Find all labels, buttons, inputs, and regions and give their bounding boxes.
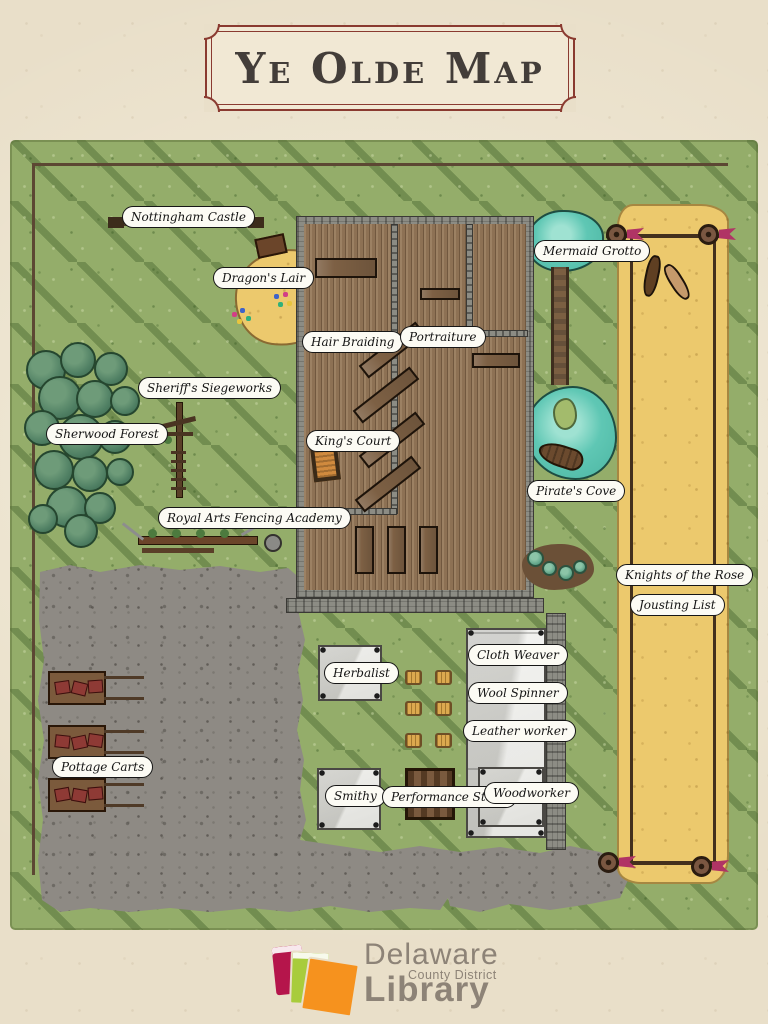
map-label-royal-arts-fencing-academy: Royal Arts Fencing Academy xyxy=(158,507,351,529)
tree-icon xyxy=(64,514,98,548)
map-label-nottingham-castle: Nottingham Castle xyxy=(122,206,255,228)
fence-line-top xyxy=(32,163,728,166)
table xyxy=(315,258,377,278)
gem-pile-icon xyxy=(232,308,258,328)
wheel-post-icon xyxy=(698,224,719,245)
map-label-pottage-carts: Pottage Carts xyxy=(52,756,153,778)
gem-pile-icon xyxy=(274,292,300,312)
table xyxy=(420,288,460,300)
map-label-wool-spinner: Wool Spinner xyxy=(468,682,568,704)
wheel-post-icon xyxy=(691,856,712,877)
pottage-cart-icon xyxy=(48,671,106,705)
hay-bale-icon xyxy=(405,670,422,685)
book-icon xyxy=(300,956,360,1017)
hay-bale-icon xyxy=(405,733,422,748)
tree-icon xyxy=(72,456,108,492)
event-map: Nottingham Castle Dragon's Lair Mermaid … xyxy=(10,140,758,930)
pottage-cart-icon xyxy=(48,725,106,759)
pottage-cart-icon xyxy=(48,778,106,812)
bush-icon xyxy=(542,561,557,576)
deck-wall xyxy=(466,224,473,336)
cove-island xyxy=(553,398,577,430)
table xyxy=(355,526,374,574)
logo-line-delaware: Delaware xyxy=(364,938,499,972)
bush-icon xyxy=(527,550,544,567)
map-label-hair-braiding: Hair Braiding xyxy=(302,331,403,353)
library-logo: Delaware County District Library xyxy=(266,938,499,1014)
map-label-mermaid-grotto: Mermaid Grotto xyxy=(534,240,650,262)
title-banner: Ye Olde Map xyxy=(205,25,575,111)
bush-icon xyxy=(558,565,574,581)
tree-icon xyxy=(76,380,114,418)
map-label-sheriffs-siegeworks: Sheriff's Siegeworks xyxy=(138,377,281,399)
tree-icon xyxy=(28,504,58,534)
tree-icon xyxy=(60,342,96,378)
map-label-knights-of-the-rose: Knights of the Rose xyxy=(616,564,753,586)
map-label-smithy: Smithy xyxy=(325,785,386,807)
deck-floor xyxy=(304,224,526,590)
map-label-sherwood-forest: Sherwood Forest xyxy=(46,423,168,445)
hay-bale-icon xyxy=(435,701,452,716)
poster: Ye Olde Map xyxy=(0,0,768,1024)
weapon-rack-icon xyxy=(128,528,288,564)
books-icon xyxy=(266,938,358,1014)
market-deck xyxy=(296,216,534,598)
map-label-cloth-weaver: Cloth Weaver xyxy=(468,644,568,666)
tree-icon xyxy=(34,450,74,490)
bush-icon xyxy=(573,560,587,574)
map-label-kings-court: King's Court xyxy=(306,430,400,452)
table xyxy=(387,526,406,574)
trebuchet-icon xyxy=(162,402,202,502)
hay-bale-icon xyxy=(435,670,452,685)
jousting-fence xyxy=(713,236,716,863)
page-title: Ye Olde Map xyxy=(207,27,573,109)
map-label-pirates-cove: Pirate's Cove xyxy=(527,480,625,502)
library-logo-text: Delaware County District Library xyxy=(364,938,499,1014)
logo-line-library: Library xyxy=(364,970,499,1010)
map-label-portraiture: Portraiture xyxy=(400,326,486,348)
jousting-fence xyxy=(630,236,633,863)
hay-bale-icon xyxy=(435,733,452,748)
map-label-jousting-list: Jousting List xyxy=(630,594,725,616)
table xyxy=(472,353,520,368)
wheel-post-icon xyxy=(598,852,619,873)
tree-icon xyxy=(106,458,134,486)
map-label-herbalist: Herbalist xyxy=(324,662,399,684)
tree-icon xyxy=(110,386,140,416)
table xyxy=(419,526,438,574)
boardwalk-dock xyxy=(551,267,569,385)
map-label-dragons-lair: Dragon's Lair xyxy=(213,267,314,289)
stone-walkway xyxy=(286,598,544,613)
hay-bale-icon xyxy=(405,701,422,716)
flag-icon xyxy=(719,228,736,240)
map-label-woodworker: Woodworker xyxy=(484,782,579,804)
map-label-leather-worker: Leather worker xyxy=(463,720,576,742)
